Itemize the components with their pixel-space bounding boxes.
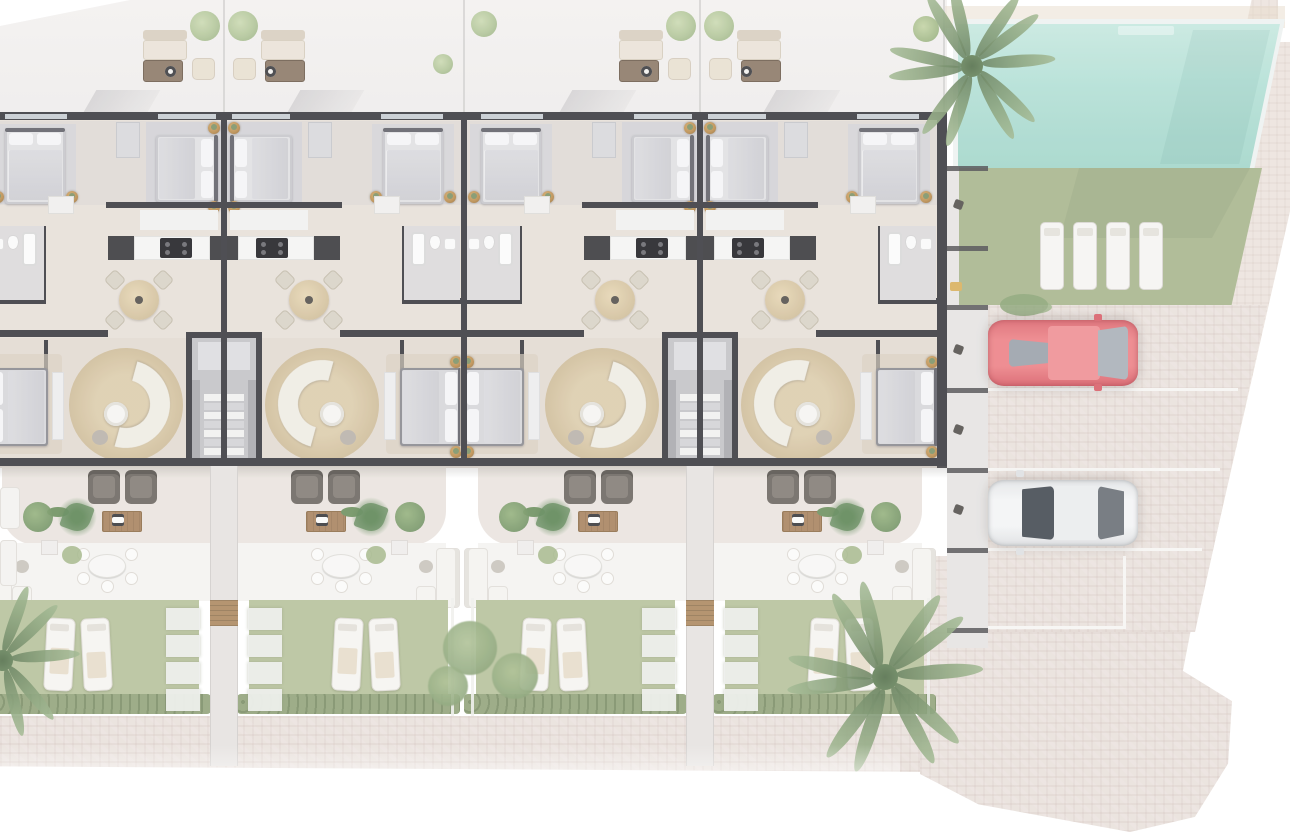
unit-2-lounger-headrest: [375, 624, 394, 632]
tree: [190, 11, 220, 41]
unit-4-terrace-sofa-back: [737, 30, 781, 40]
unit-1-terrace-sofa-back: [143, 30, 187, 40]
unit-4-patio-table: [798, 554, 836, 578]
unit-3-hall-strip: [616, 210, 694, 230]
unit-4-terrace-pouf: [709, 58, 732, 80]
unit-2-table-decor: [305, 296, 313, 304]
unit-1-terrace-sofa-seat: [143, 40, 187, 60]
unit-1-patio-chair: [77, 572, 90, 585]
unit-2-wardrobe: [308, 122, 332, 158]
unit-2-bed-c-duvet: [403, 371, 439, 443]
unit-3-terrace-pouf: [668, 58, 691, 80]
unit-4-hob: [732, 238, 764, 258]
unit-1-bed-a-headboard: [214, 135, 218, 202]
unit-4-patio-chair: [835, 572, 848, 585]
unit-3-terrace-shadow: [560, 90, 637, 112]
unit-2-sink: [444, 238, 456, 250]
unit-4-armchair-cushion: [772, 476, 794, 498]
unit-2-patio-table: [322, 554, 360, 578]
unit-2-wall: [340, 330, 462, 337]
unit-3-hob-burner: [658, 250, 663, 255]
building-bottom-wall: [0, 458, 947, 466]
garden-shrub: [428, 666, 468, 706]
parking-bush: [1000, 294, 1048, 316]
unit-1-hob: [160, 238, 192, 258]
unit-4-bed-c-pillow: [921, 409, 933, 442]
unit-4-patio-bush: [842, 546, 862, 564]
unit-4-bathtub: [887, 232, 902, 266]
unit-2-hall-strip: [230, 210, 308, 230]
unit-1-sink: [0, 238, 4, 250]
unit-1-lounger-headrest: [50, 624, 69, 632]
planter-plant: [929, 358, 935, 364]
unit-2-window-glazing: [232, 114, 290, 119]
unit-1-bed-b-headboard: [5, 128, 65, 132]
unit-1-bedroom-c-closet: [52, 372, 64, 440]
building-right-wall: [937, 112, 947, 468]
unit-2-bed-a-pillow: [235, 171, 247, 199]
unit-1-shower-pad: [41, 540, 58, 555]
unit-2-hob-burner: [261, 242, 266, 247]
white-car-windshield: [1022, 486, 1054, 540]
unit-4-window-glazing: [857, 114, 919, 119]
unit-4-stepping-stone: [724, 635, 758, 657]
unit-2-bed-a-pillow: [235, 139, 247, 167]
parking-line: [988, 626, 1126, 629]
unit-4-terrace-bush: [871, 502, 901, 532]
unit-4-stepping-stone: [724, 662, 758, 684]
unit-2-bed-b-duvet: [386, 150, 440, 200]
unit-4-wall: [702, 202, 818, 208]
unit-4-lounge-pouf: [816, 430, 832, 445]
unit-2-patio-bush: [366, 546, 386, 564]
unit-1-stepping-stone: [166, 635, 200, 657]
walkway: [0, 716, 950, 772]
unit-4-bed-a-duvet: [728, 138, 764, 199]
unit-4-grill-icon: [792, 514, 804, 526]
unit-1-hob-burner: [165, 242, 170, 247]
unit-4-patio-pouf: [895, 560, 909, 573]
unit-3-lounger-headrest: [563, 624, 582, 632]
unit-2-stepping-stone: [248, 689, 282, 711]
unit-3-bathtub: [498, 232, 513, 266]
unit-3-stepping-stone: [642, 635, 676, 657]
unit-2-wall: [226, 202, 342, 208]
unit-2-patio-pouf: [419, 560, 433, 573]
unit-1-coffee-table: [104, 402, 128, 426]
red-car-windshield: [1098, 326, 1128, 380]
pool-shallow-step: [1118, 26, 1174, 35]
planter-plant: [453, 358, 459, 364]
unit-2-terrace-pouf: [233, 58, 256, 80]
white-car-mirror: [1016, 548, 1024, 555]
unit-4-hob-burner: [737, 242, 742, 247]
white-car-mirror: [1016, 470, 1024, 477]
unit-3-lounger-headrest: [526, 624, 545, 632]
unit-3-terrace-sofa-back: [619, 30, 663, 40]
unit-4-window-glazing: [708, 114, 766, 119]
unit-1-lounge-pouf: [92, 430, 108, 445]
unit-2-patio-chair: [311, 548, 324, 561]
rear-patio-strip: [947, 305, 988, 648]
tree: [228, 11, 258, 41]
unit-4-terrace-sofa-seat: [737, 40, 781, 60]
unit-4-patio-chair: [787, 572, 800, 585]
unit-3-bed-b-headboard: [481, 128, 541, 132]
unit-4-patio-chair: [787, 548, 800, 561]
unit-3-terrace-table: [619, 60, 659, 82]
unit-3-corridor-wardrobe: [524, 196, 550, 214]
unit-3-patio-pouf: [491, 560, 505, 573]
unit-4-bed-b-headboard: [859, 128, 919, 132]
unit-3-hob-burner: [641, 242, 646, 247]
unit-3-window-glazing: [481, 114, 543, 119]
party-wall: [461, 112, 467, 466]
planter-plant: [211, 124, 217, 130]
unit-2-patio-chair: [335, 580, 348, 593]
unit-4-shower-pad: [867, 540, 884, 555]
unit-3-terrace-grill: [641, 66, 652, 77]
tree: [666, 11, 696, 41]
unit-1-armchair-cushion: [130, 476, 152, 498]
unit-4-bed-b-pillow: [891, 133, 915, 145]
tree: [704, 11, 734, 41]
patio-divider-wall: [947, 548, 988, 553]
red-car-mirror: [1094, 314, 1102, 321]
unit-2-hob-burner: [278, 250, 283, 255]
unit-3-armchair-cushion: [606, 476, 628, 498]
unit-2-toilet: [430, 236, 440, 249]
unit-3-lounger-towel: [562, 652, 582, 679]
unit-3-wall: [582, 202, 698, 208]
unit-1-wardrobe: [116, 122, 140, 158]
unit-3-stepping-stone: [642, 662, 676, 684]
unit-4-terrace-shadow: [764, 90, 841, 112]
unit-1-wall: [0, 330, 108, 337]
unit-1-table-decor: [135, 296, 143, 304]
unit-2-terrace-grill: [265, 66, 276, 77]
unit-3-bed-a-pillow: [677, 171, 689, 199]
terrace-divider: [223, 0, 225, 112]
planter-plant: [447, 193, 453, 199]
party-wall: [697, 112, 703, 466]
stair-side: [724, 380, 732, 458]
patio-divider-wall: [947, 305, 988, 310]
stair-side: [192, 380, 200, 458]
unit-3-bed-a-pillow: [677, 139, 689, 167]
stair-side: [248, 380, 256, 458]
unit-1-patio-table: [88, 554, 126, 578]
unit-2-stepping-stone: [248, 608, 282, 630]
unit-2-coffee-table: [320, 402, 344, 426]
planter-plant: [923, 193, 929, 199]
party-wall: [221, 112, 227, 466]
unit-2-bed-c-pillow: [445, 372, 457, 405]
unit-3-wall: [462, 330, 584, 337]
unit-3-patio-chair: [601, 572, 614, 585]
terrace-divider: [463, 0, 465, 112]
unit-4-bed-a-pillow: [711, 139, 723, 167]
unit-2-terrace-sofa-seat: [261, 40, 305, 60]
unit-1-patio-bush: [62, 546, 82, 564]
unit-4-sink: [920, 238, 932, 250]
unit-3-bed-a-headboard: [690, 135, 694, 202]
unit-1-bed-c-pillow: [0, 372, 3, 405]
unit-3-table-decor: [611, 296, 619, 304]
edge-sofa: [0, 487, 20, 529]
unit-4-hob-burner: [754, 242, 759, 247]
unit-1-hob-burner: [182, 242, 187, 247]
unit-2-stepping-stone: [248, 635, 282, 657]
unit-4-corridor-wardrobe: [850, 196, 876, 214]
unit-1-bed-c-duvet: [8, 371, 44, 443]
unit-4-bed-b-duvet: [862, 150, 916, 200]
unit-2-window-glazing: [381, 114, 443, 119]
unit-1-hob-burner: [182, 250, 187, 255]
patio-divider-wall: [947, 388, 988, 393]
red-car-roof: [1048, 326, 1100, 380]
unit-1-terrace-shadow: [84, 90, 161, 112]
unit-2-terrace-sofa-back: [261, 30, 305, 40]
unit-1-bed-a-pillow: [201, 171, 213, 199]
unit-4-bed-a-pillow: [711, 171, 723, 199]
unit-2-armchair-cushion: [296, 476, 318, 498]
unit-2-bed-b-pillow: [387, 133, 411, 145]
unit-2-stepping-stone: [248, 662, 282, 684]
unit-4-patio-chair: [811, 580, 824, 593]
unit-2-bathtub: [411, 232, 426, 266]
unit-2-patio-chair: [359, 572, 372, 585]
unit-3-hob-burner: [658, 242, 663, 247]
planter-plant: [929, 448, 935, 454]
unit-4-table-decor: [781, 296, 789, 304]
tree: [433, 54, 453, 74]
edge-sofa: [0, 540, 17, 586]
unit-1-bed-a-pillow: [201, 139, 213, 167]
unit-2-patio-sofa: [436, 548, 460, 608]
unit-4-hob-burner: [737, 250, 742, 255]
unit-4-bed-c-duvet: [879, 371, 915, 443]
unit-3-wardrobe: [592, 122, 616, 158]
unit-4-bed-a-headboard: [706, 135, 710, 202]
unit-4-terrace-grill: [741, 66, 752, 77]
unit-1-stepping-stone: [166, 662, 200, 684]
pool-lounger-headrest: [1077, 228, 1093, 236]
unit-3-patio-chair: [601, 548, 614, 561]
unit-1-lounger-headrest: [87, 624, 106, 632]
unit-2-bed-a-headboard: [230, 135, 234, 202]
unit-1-bed-a-duvet: [159, 138, 195, 199]
unit-1-wall: [106, 202, 222, 208]
unit-1-lounger-towel: [86, 652, 106, 679]
red-car-mirror: [1094, 384, 1102, 391]
unit-3-patio-chair: [577, 580, 590, 593]
unit-2-terrace-bush: [395, 502, 425, 532]
unit-1-grill-icon: [112, 514, 124, 526]
unit-3-bed-a-duvet: [635, 138, 671, 199]
unit-3-bed-c-pillow: [467, 372, 479, 405]
unit-1-terrace-bush: [23, 502, 53, 532]
pool-lounger-headrest: [1110, 228, 1126, 236]
unit-4-stepping-stone: [724, 689, 758, 711]
unit-1-patio-pouf: [15, 560, 29, 573]
unit-2-shower-pad: [391, 540, 408, 555]
patio-bench: [950, 282, 962, 291]
unit-4-hob-burner: [754, 250, 759, 255]
unit-4-bed-c-pillow: [921, 372, 933, 405]
unit-1-patio-chair: [125, 548, 138, 561]
unit-3-coffee-table: [580, 402, 604, 426]
unit-2-hob: [256, 238, 288, 258]
unit-3-shower-pad: [517, 540, 534, 555]
unit-3-patio-chair: [553, 572, 566, 585]
building-top-wall: [0, 112, 947, 120]
planter-plant: [707, 124, 713, 130]
unit-1-bed-c-pillow: [0, 409, 3, 442]
unit-2-hob-burner: [261, 250, 266, 255]
white-car-roof: [1054, 486, 1098, 540]
planter-plant: [231, 124, 237, 130]
unit-4-stepping-stone: [724, 608, 758, 630]
unit-3-terrace-bush: [499, 502, 529, 532]
unit-1-toilet: [8, 236, 18, 249]
unit-1-bed-b-pillow: [37, 133, 61, 145]
planter-plant: [471, 193, 477, 199]
unit-1-stepping-stone: [166, 608, 200, 630]
unit-1-patio-chair: [125, 572, 138, 585]
unit-3-lounge-pouf: [568, 430, 584, 445]
unit-4-bed-b-pillow: [863, 133, 887, 145]
unit-3-terrace-sofa-seat: [619, 40, 663, 60]
unit-3-kitchen-cabinet-2: [584, 236, 610, 260]
unit-2-lounger-headrest: [338, 624, 357, 632]
building-shadow: [0, 466, 947, 478]
unit-1-window-glazing: [5, 114, 67, 119]
unit-1-bathtub: [22, 232, 37, 266]
unit-3-bed-c-duvet: [484, 371, 520, 443]
unit-2-grill-icon: [316, 514, 328, 526]
site-plan-render: [0, 0, 1290, 840]
pool-lounger-headrest: [1044, 228, 1060, 236]
unit-1-stepping-stone: [166, 689, 200, 711]
garden-shrub: [492, 653, 538, 699]
unit-4-armchair-cushion: [809, 476, 831, 498]
white-car-rear-window: [1098, 486, 1124, 540]
unit-4-coffee-table: [796, 402, 820, 426]
terrace-divider: [699, 0, 701, 112]
unit-2-patio-chair: [311, 572, 324, 585]
unit-4-toilet: [906, 236, 916, 249]
unit-1-terrace-pouf: [192, 58, 215, 80]
unit-4-hall-strip: [706, 210, 784, 230]
unit-3-bed-c-pillow: [467, 409, 479, 442]
unit-2-kitchen-cabinet-2: [314, 236, 340, 260]
unit-3-bed-b-duvet: [484, 150, 538, 200]
pool-lounger-headrest: [1143, 228, 1159, 236]
unit-3-sink: [468, 238, 480, 250]
unit-1-bed-b-pillow: [9, 133, 33, 145]
unit-3-window-glazing: [634, 114, 692, 119]
unit-3-bed-b-pillow: [513, 133, 537, 145]
unit-3-patio-table: [564, 554, 602, 578]
patio-divider-wall: [947, 246, 988, 251]
unit-1-patio-chair: [101, 580, 114, 593]
unit-4-lounger-headrest: [814, 624, 833, 632]
unit-2-bed-a-duvet: [252, 138, 288, 199]
unit-1-kitchen-cabinet-2: [108, 236, 134, 260]
tree: [471, 11, 497, 37]
patio-divider-wall: [947, 166, 988, 171]
unit-2-terrace-shadow: [288, 90, 365, 112]
unit-2-bedroom-c-closet: [384, 372, 396, 440]
unit-2-lounger-towel: [337, 648, 357, 675]
unit-4-wall: [816, 330, 938, 337]
unit-4-bedroom-c-closet: [860, 372, 872, 440]
unit-1-window-glazing: [158, 114, 216, 119]
patio-divider-wall: [947, 468, 988, 473]
unit-2-bed-b-headboard: [383, 128, 443, 132]
unit-2-lounge-pouf: [340, 430, 356, 445]
unit-1-terrace-grill: [165, 66, 176, 77]
unit-3-toilet: [484, 236, 494, 249]
unit-3-patio-bush: [538, 546, 558, 564]
planter-plant: [453, 448, 459, 454]
unit-3-hob: [636, 238, 668, 258]
unit-2-hob-burner: [278, 242, 283, 247]
unit-4-kitchen-cabinet-2: [790, 236, 816, 260]
unit-4-wardrobe: [784, 122, 808, 158]
path-wood-deck: [686, 600, 714, 626]
unit-1-corridor-wardrobe: [48, 196, 74, 214]
unit-3-bedroom-c-closet: [528, 372, 540, 440]
path-wood-deck: [210, 600, 238, 626]
unit-2-bed-b-pillow: [415, 133, 439, 145]
unit-3-stepping-stone: [642, 608, 676, 630]
unit-1-bed-b-duvet: [8, 150, 62, 200]
unit-2-lounger-towel: [374, 652, 394, 679]
parking-line-side: [1123, 556, 1126, 628]
unit-2-bed-c-pillow: [445, 409, 457, 442]
planter-plant: [687, 124, 693, 130]
unit-1-terrace-table: [143, 60, 183, 82]
unit-3-hob-burner: [641, 250, 646, 255]
unit-3-patio-sofa: [464, 548, 488, 608]
unit-1-hall-strip: [140, 210, 218, 230]
unit-1-armchair-cushion: [93, 476, 115, 498]
unit-3-grill-icon: [588, 514, 600, 526]
unit-2-armchair-cushion: [333, 476, 355, 498]
unit-3-armchair-cushion: [569, 476, 591, 498]
stair-side: [668, 380, 676, 458]
unit-1-hob-burner: [165, 250, 170, 255]
unit-3-stepping-stone: [642, 689, 676, 711]
unit-3-bed-b-pillow: [485, 133, 509, 145]
unit-2-corridor-wardrobe: [374, 196, 400, 214]
